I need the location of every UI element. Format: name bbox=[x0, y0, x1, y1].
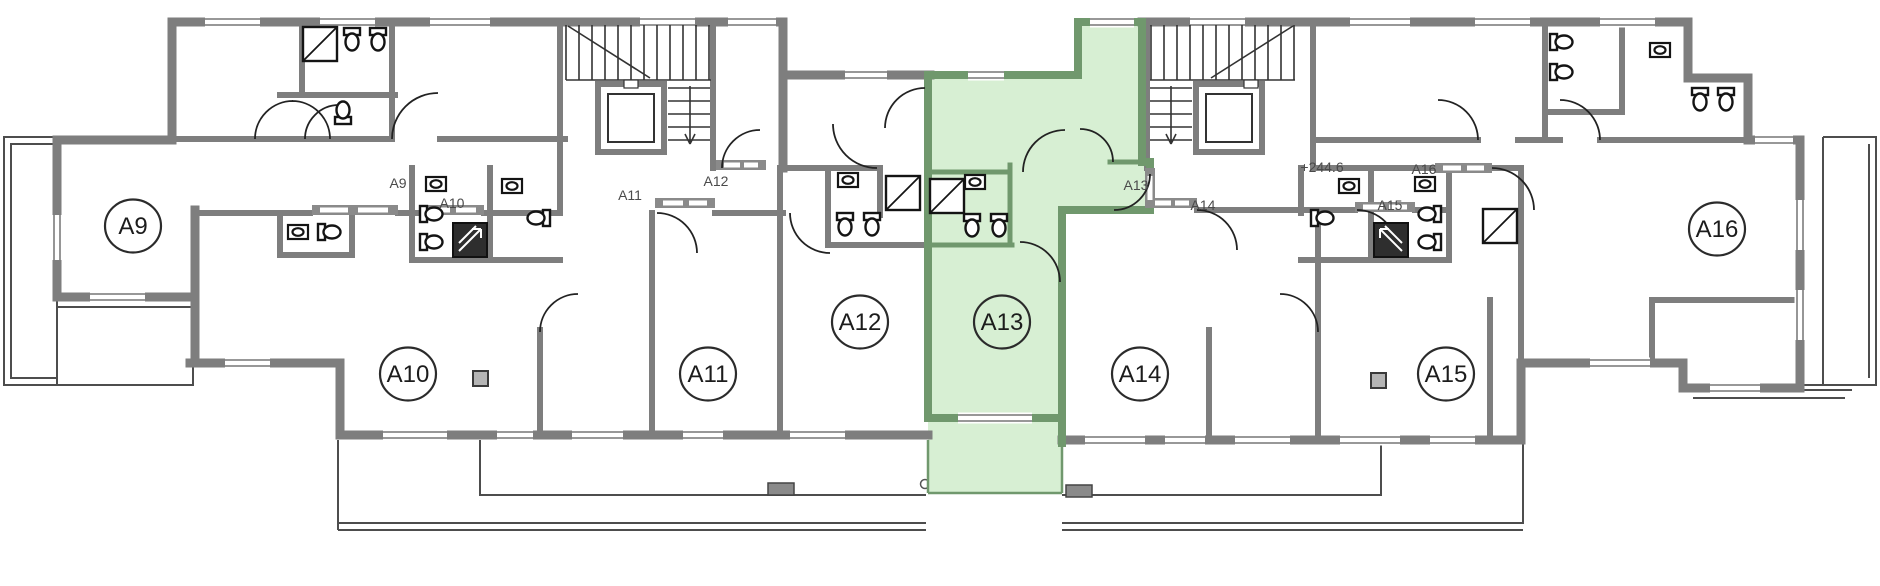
sink-icon bbox=[838, 173, 858, 187]
toilet-icon bbox=[991, 214, 1007, 237]
shower-icon bbox=[453, 223, 487, 257]
unit-bubble-label: A9 bbox=[118, 213, 147, 240]
elevator-right bbox=[1196, 80, 1262, 152]
door-label-a12: A12 bbox=[704, 173, 729, 189]
shower-icon bbox=[303, 27, 337, 61]
unit-bubble-a9[interactable]: A9 bbox=[105, 200, 161, 253]
door-label-a10: A10 bbox=[440, 195, 465, 211]
door-label-a11: A11 bbox=[618, 187, 642, 203]
toilet-icon bbox=[370, 28, 386, 51]
toilet-icon bbox=[344, 28, 360, 51]
toilet-icon bbox=[1550, 34, 1573, 50]
unit-bubble-label: A11 bbox=[688, 361, 729, 388]
elevation-label: +244.6 bbox=[1300, 159, 1343, 175]
toilet-icon bbox=[964, 214, 980, 237]
sink-icon bbox=[1415, 177, 1435, 191]
toilet-icon bbox=[1419, 206, 1442, 222]
unit-bubble-label: A12 bbox=[839, 309, 882, 336]
sink-icon bbox=[1339, 179, 1359, 193]
toilet-icon bbox=[420, 234, 443, 250]
unit-bubble-a14[interactable]: A14 bbox=[1112, 348, 1168, 401]
door-label-a16: A16 bbox=[1412, 161, 1437, 177]
unit-bubble-a10[interactable]: A10 bbox=[380, 348, 436, 401]
toilet-icon bbox=[837, 213, 853, 236]
toilet-icon bbox=[528, 210, 551, 226]
toilet-icon bbox=[318, 224, 341, 240]
toilet-icon bbox=[1419, 234, 1442, 250]
toilet-icon bbox=[1692, 88, 1708, 111]
toilet-icon bbox=[864, 213, 880, 236]
shower-icon bbox=[930, 179, 964, 213]
toilet-icon bbox=[1550, 64, 1573, 80]
floor-plan-canvas: A9A10A11A12A13A14A15A16 A9A10A11A12A13A1… bbox=[0, 0, 1880, 586]
door-label-a9: A9 bbox=[389, 175, 406, 191]
sink-icon bbox=[288, 225, 308, 239]
unit-bubble-label: A14 bbox=[1119, 361, 1162, 388]
sink-icon bbox=[426, 177, 446, 191]
toilet-icon bbox=[1311, 210, 1334, 226]
sink-icon bbox=[965, 175, 985, 189]
unit-bubble-label: A16 bbox=[1696, 216, 1739, 243]
sink-icon bbox=[502, 179, 522, 193]
shower-icon bbox=[1483, 209, 1517, 243]
door-label-a13: A13 bbox=[1124, 177, 1149, 193]
elevator-left bbox=[598, 80, 664, 152]
unit-bubble-a16[interactable]: A16 bbox=[1689, 203, 1745, 256]
unit-bubble-a12[interactable]: A12 bbox=[832, 296, 888, 349]
shower-icon bbox=[886, 176, 920, 210]
toilet-icon bbox=[335, 102, 351, 125]
door-label-a15: A15 bbox=[1378, 197, 1403, 213]
shower-icon bbox=[1374, 223, 1408, 257]
unit-bubble-a11[interactable]: A11 bbox=[680, 348, 736, 401]
unit-bubble-label: A10 bbox=[387, 361, 430, 388]
sink-icon bbox=[1650, 43, 1670, 57]
unit-bubble-label: A13 bbox=[981, 309, 1024, 336]
door-label-a14: A14 bbox=[1191, 197, 1216, 213]
toilet-icon bbox=[1718, 88, 1734, 111]
unit-bubble-label: A15 bbox=[1425, 361, 1468, 388]
unit-bubble-a15[interactable]: A15 bbox=[1418, 348, 1474, 401]
floor-plan-svg: A9A10A11A12A13A14A15A16 A9A10A11A12A13A1… bbox=[0, 0, 1880, 586]
annotations: +244.6 bbox=[1300, 159, 1343, 175]
